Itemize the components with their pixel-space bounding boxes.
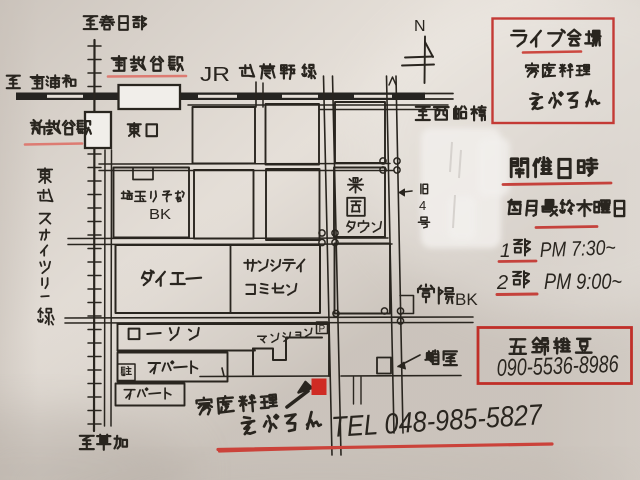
svg-text:4: 4 — [419, 198, 426, 213]
svg-text:PM 9:00~: PM 9:00~ — [544, 269, 622, 294]
svg-text:2: 2 — [496, 272, 508, 294]
svg-text:BK: BK — [149, 206, 171, 223]
svg-text:BK: BK — [455, 290, 478, 309]
svg-text:N: N — [414, 18, 426, 35]
svg-text:PM 7:30~: PM 7:30~ — [539, 236, 616, 262]
svg-text:090-5536-8986: 090-5536-8986 — [496, 351, 619, 382]
svg-text:P: P — [319, 324, 326, 335]
svg-text:1: 1 — [500, 241, 511, 262]
svg-text:JR: JR — [200, 64, 230, 86]
